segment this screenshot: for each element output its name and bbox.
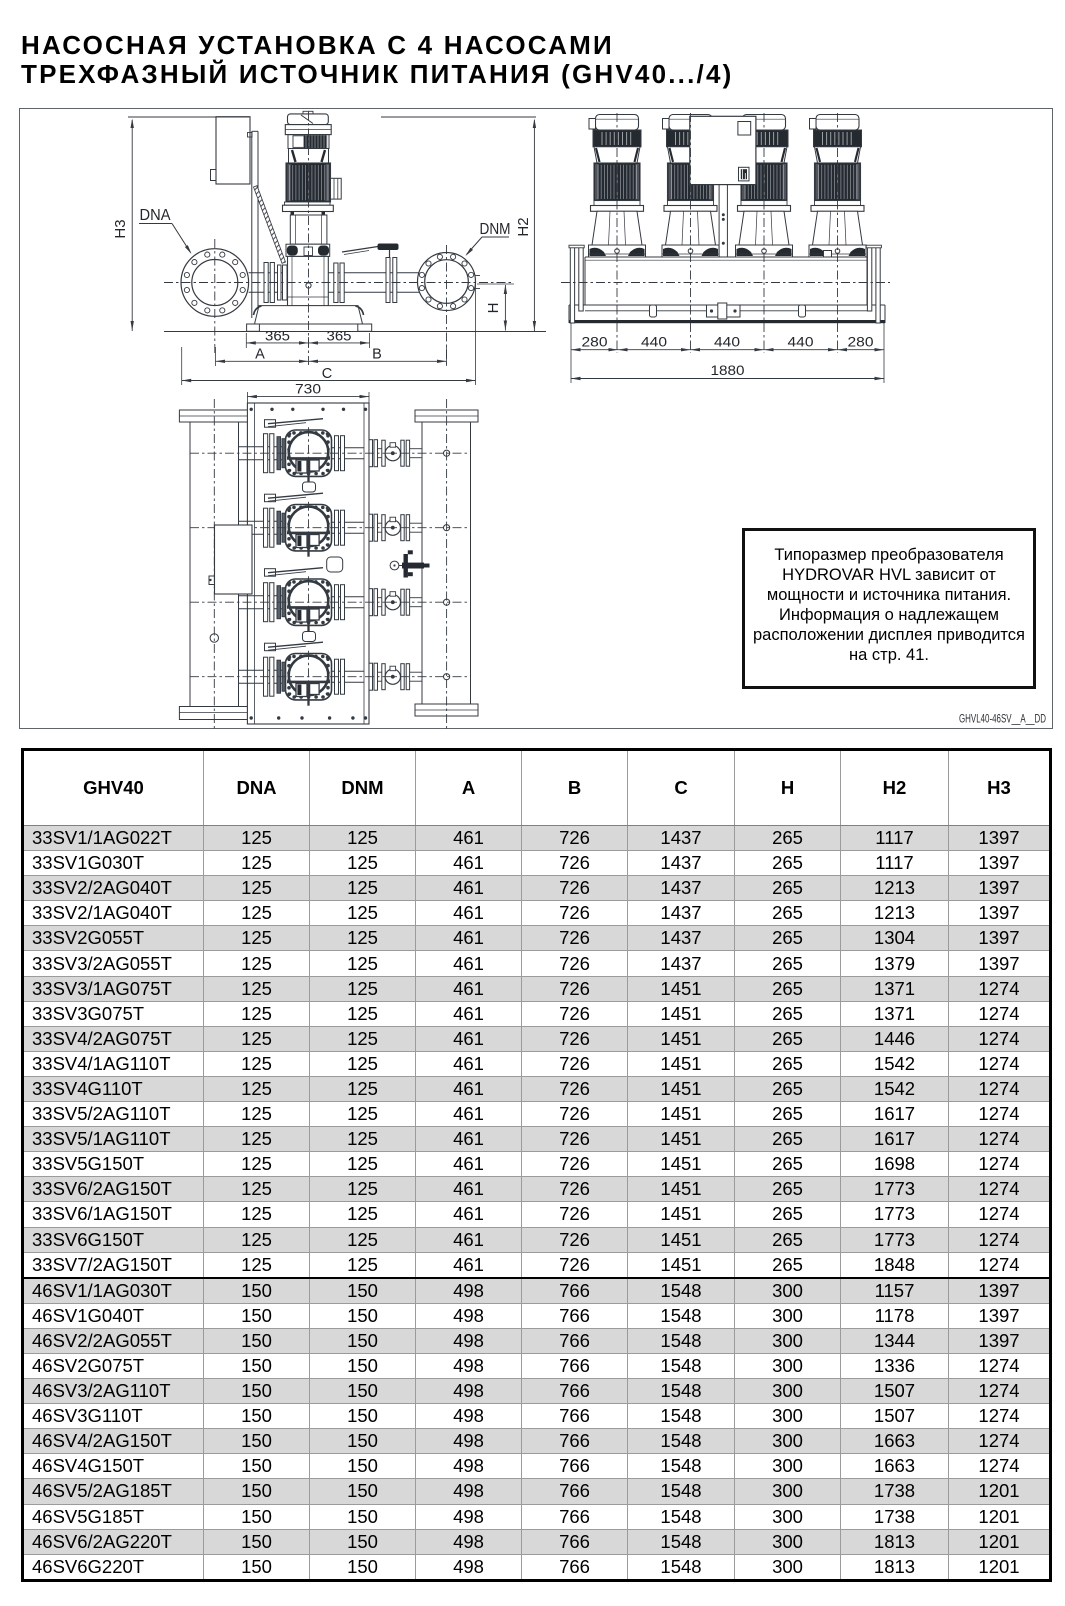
- svg-text:H2: H2: [515, 217, 532, 236]
- svg-text:280: 280: [582, 335, 608, 350]
- svg-text:B: B: [372, 347, 382, 363]
- svg-text:DNA: DNA: [140, 207, 172, 224]
- svg-text:H3: H3: [112, 219, 129, 238]
- svg-text:1880: 1880: [711, 363, 745, 378]
- svg-text:365: 365: [327, 329, 352, 344]
- svg-text:440: 440: [641, 335, 667, 350]
- svg-text:440: 440: [788, 335, 814, 350]
- svg-text:440: 440: [714, 335, 740, 350]
- svg-text:730: 730: [295, 382, 321, 397]
- svg-text:GHVL40-46SV__A__DD: GHVL40-46SV__A__DD: [959, 714, 1046, 726]
- svg-text:280: 280: [848, 335, 874, 350]
- svg-text:H: H: [485, 303, 502, 314]
- svg-text:DNM: DNM: [480, 221, 511, 238]
- svg-text:A: A: [255, 347, 265, 363]
- svg-text:365: 365: [265, 329, 290, 344]
- svg-text:C: C: [322, 366, 332, 382]
